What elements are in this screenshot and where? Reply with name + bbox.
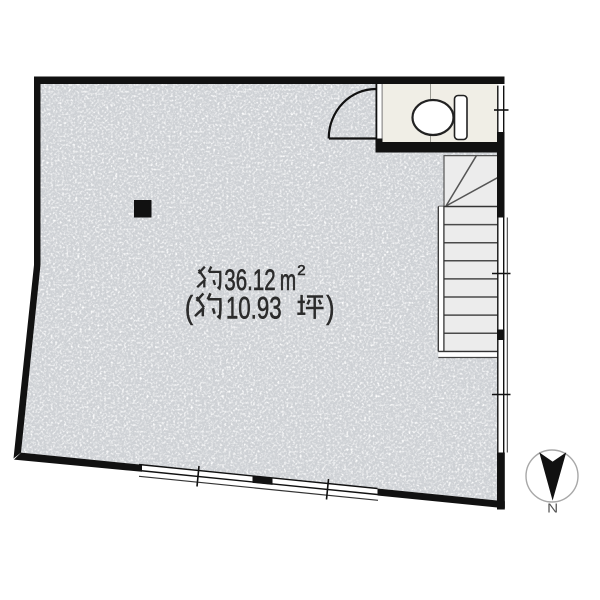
svg-text:): ) — [326, 290, 334, 326]
svg-text:2: 2 — [297, 262, 305, 279]
svg-text:10.93: 10.93 — [226, 290, 282, 326]
svg-text:m: m — [280, 264, 296, 297]
svg-text:(: ( — [185, 290, 193, 326]
svg-text:N: N — [547, 501, 558, 516]
